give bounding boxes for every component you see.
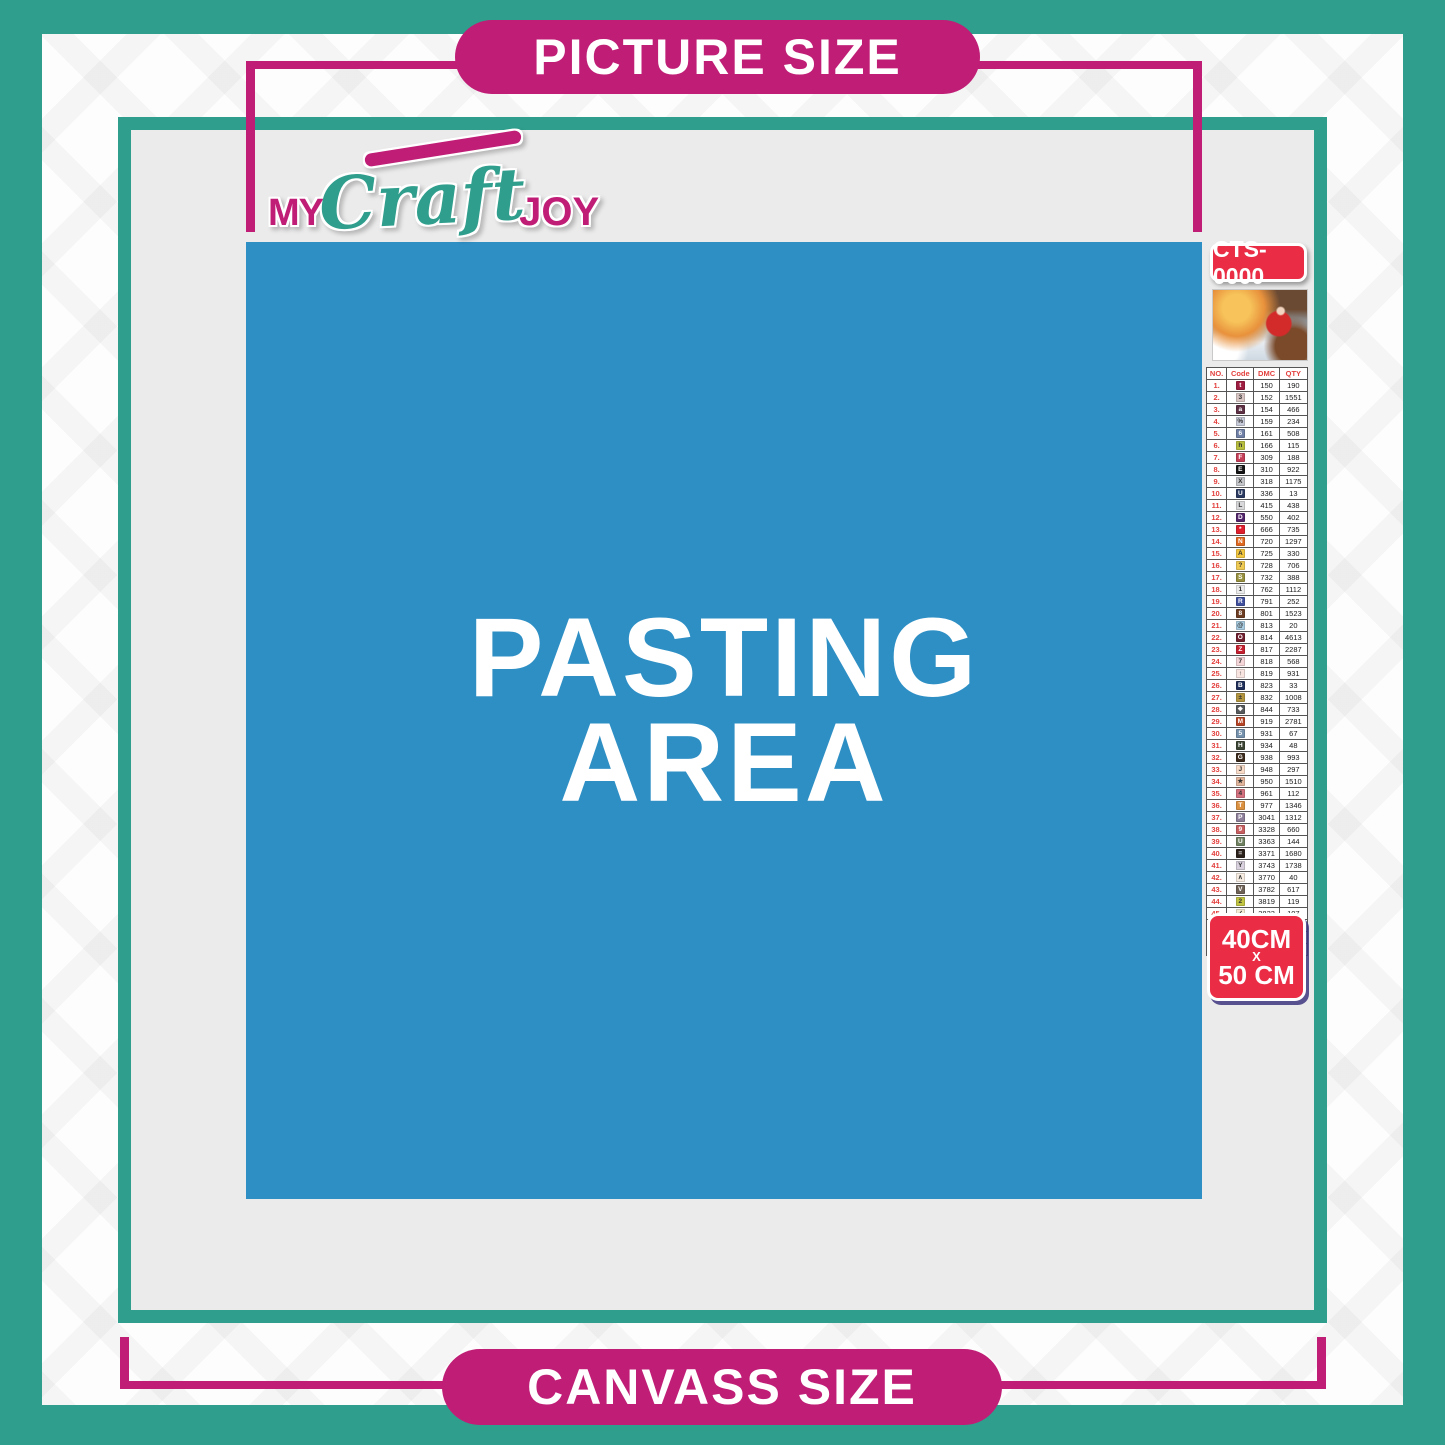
symbol-cell: a — [1227, 404, 1254, 416]
symbol-cell: t — [1227, 380, 1254, 392]
dmc-code-cell: 161 — [1254, 428, 1279, 440]
legend-table-row: 4.%159234 — [1207, 416, 1308, 428]
legend-column-header: NO. — [1207, 368, 1227, 380]
legend-table-row: 42.∧377040 — [1207, 872, 1308, 884]
symbol-cell: F — [1227, 452, 1254, 464]
symbol-cell: G — [1227, 752, 1254, 764]
symbol-cell: 2 — [1227, 896, 1254, 908]
symbol-cell: J — [1227, 764, 1254, 776]
symbol-chip: V — [1236, 885, 1245, 894]
legend-table-row: 18.17621112 — [1207, 584, 1308, 596]
row-number-cell: 20. — [1207, 608, 1227, 620]
pasting-area-label: PASTING AREA — [469, 606, 980, 814]
dmc-code-cell: 3770 — [1254, 872, 1279, 884]
quantity-cell: 1680 — [1279, 848, 1307, 860]
symbol-chip: U — [1236, 489, 1245, 498]
symbol-chip: ↑ — [1236, 669, 1245, 678]
symbol-chip: 9 — [1236, 825, 1245, 834]
symbol-cell: ? — [1227, 560, 1254, 572]
quantity-cell: 508 — [1279, 428, 1307, 440]
row-number-cell: 14. — [1207, 536, 1227, 548]
dmc-code-cell: 919 — [1254, 716, 1279, 728]
quantity-cell: 568 — [1279, 656, 1307, 668]
quantity-cell: 2287 — [1279, 644, 1307, 656]
row-number-cell: 11. — [1207, 500, 1227, 512]
dmc-code-cell: 666 — [1254, 524, 1279, 536]
symbol-chip: Y — [1236, 861, 1245, 870]
symbol-cell: M — [1227, 716, 1254, 728]
row-number-cell: 31. — [1207, 740, 1227, 752]
legend-table-row: 23.Z8172287 — [1207, 644, 1308, 656]
symbol-chip: 1 — [1236, 585, 1245, 594]
legend-column-header: Code — [1227, 368, 1254, 380]
symbol-chip: B — [1236, 681, 1245, 690]
legend-table-row: 11.L415438 — [1207, 500, 1308, 512]
row-number-cell: 27. — [1207, 692, 1227, 704]
canvass-size-banner: CANVASS SIZE — [442, 1349, 1002, 1425]
row-number-cell: 1. — [1207, 380, 1227, 392]
symbol-cell: H — [1227, 740, 1254, 752]
symbol-cell: D — [1227, 512, 1254, 524]
legend-table-row: 33.J948297 — [1207, 764, 1308, 776]
symbol-cell: 3 — [1227, 392, 1254, 404]
symbol-cell: 5 — [1227, 728, 1254, 740]
row-number-cell: 37. — [1207, 812, 1227, 824]
symbol-chip: ∧ — [1236, 873, 1245, 882]
legend-table-row: 35.4961112 — [1207, 788, 1308, 800]
row-number-cell: 6. — [1207, 440, 1227, 452]
legend-table-row: 24.7818568 — [1207, 656, 1308, 668]
legend-table-row: 3.a154466 — [1207, 404, 1308, 416]
symbol-chip: X — [1236, 477, 1245, 486]
symbol-chip: E — [1236, 465, 1245, 474]
dmc-code-cell: 791 — [1254, 596, 1279, 608]
quantity-cell: 144 — [1279, 836, 1307, 848]
dmc-code-cell: 3819 — [1254, 896, 1279, 908]
legend-table-row: 6.h166115 — [1207, 440, 1308, 452]
quantity-cell: 40 — [1279, 872, 1307, 884]
symbol-cell: Y — [1227, 860, 1254, 872]
dmc-code-cell: 3371 — [1254, 848, 1279, 860]
symbol-cell: 4 — [1227, 788, 1254, 800]
symbol-cell: 1 — [1227, 584, 1254, 596]
dmc-code-cell: 415 — [1254, 500, 1279, 512]
symbol-cell: B — [1227, 680, 1254, 692]
quantity-cell: 1510 — [1279, 776, 1307, 788]
row-number-cell: 19. — [1207, 596, 1227, 608]
symbol-cell: X — [1227, 476, 1254, 488]
dmc-code-cell: 728 — [1254, 560, 1279, 572]
quantity-cell: 252 — [1279, 596, 1307, 608]
symbol-chip: 7 — [1236, 657, 1245, 666]
quantity-cell: 119 — [1279, 896, 1307, 908]
dmc-code-cell: 309 — [1254, 452, 1279, 464]
symbol-chip: H — [1236, 741, 1245, 750]
symbol-chip: J — [1236, 765, 1245, 774]
symbol-chip: ± — [1236, 693, 1245, 702]
symbol-chip: 4 — [1236, 789, 1245, 798]
row-number-cell: 34. — [1207, 776, 1227, 788]
symbol-chip: = — [1236, 849, 1245, 858]
quantity-cell: 33 — [1279, 680, 1307, 692]
legend-table-row: 8.E310922 — [1207, 464, 1308, 476]
quantity-cell: 617 — [1279, 884, 1307, 896]
logo-text-joy: JOY — [519, 194, 599, 230]
dmc-code-cell: 977 — [1254, 800, 1279, 812]
row-number-cell: 35. — [1207, 788, 1227, 800]
symbol-cell: % — [1227, 416, 1254, 428]
symbol-chip: R — [1236, 597, 1245, 606]
legend-table-row: 15.A725330 — [1207, 548, 1308, 560]
row-number-cell: 12. — [1207, 512, 1227, 524]
dmc-code-cell: 166 — [1254, 440, 1279, 452]
quantity-cell: 234 — [1279, 416, 1307, 428]
symbol-cell: R — [1227, 596, 1254, 608]
legend-table-row: 32.G938993 — [1207, 752, 1308, 764]
quantity-cell: 330 — [1279, 548, 1307, 560]
symbol-cell: h — [1227, 440, 1254, 452]
legend-table-row: 14.N7201297 — [1207, 536, 1308, 548]
dmc-code-cell: 310 — [1254, 464, 1279, 476]
dmc-code-cell: 150 — [1254, 380, 1279, 392]
legend-table-header-row: NO.CodeDMCQTY — [1207, 368, 1308, 380]
legend-table-row: 22.O8144613 — [1207, 632, 1308, 644]
size-badge-height: 50 CM — [1218, 963, 1295, 987]
symbol-cell: 8 — [1227, 608, 1254, 620]
legend-table-row: 29.M9192781 — [1207, 716, 1308, 728]
symbol-cell: ± — [1227, 692, 1254, 704]
dmc-code-cell: 3782 — [1254, 884, 1279, 896]
legend-table-row: 28.❖844733 — [1207, 704, 1308, 716]
pasting-area: PASTING AREA — [246, 242, 1202, 1199]
picture-size-bracket-tick-left — [246, 61, 255, 232]
quantity-cell: 297 — [1279, 764, 1307, 776]
row-number-cell: 32. — [1207, 752, 1227, 764]
row-number-cell: 30. — [1207, 728, 1227, 740]
symbol-cell: ↑ — [1227, 668, 1254, 680]
dmc-code-cell: 961 — [1254, 788, 1279, 800]
legend-table-row: 20.88011523 — [1207, 608, 1308, 620]
quantity-cell: 733 — [1279, 704, 1307, 716]
quantity-cell: 1175 — [1279, 476, 1307, 488]
legend-column-header: DMC — [1254, 368, 1279, 380]
quantity-cell: 112 — [1279, 788, 1307, 800]
quantity-cell: 190 — [1279, 380, 1307, 392]
quantity-cell: 1008 — [1279, 692, 1307, 704]
legend-table-row: 43.V3782617 — [1207, 884, 1308, 896]
symbol-chip: * — [1236, 525, 1245, 534]
quantity-cell: 735 — [1279, 524, 1307, 536]
symbol-chip: G — [1236, 753, 1245, 762]
symbol-cell: = — [1227, 848, 1254, 860]
quantity-cell: 388 — [1279, 572, 1307, 584]
dmc-code-cell: 732 — [1254, 572, 1279, 584]
symbol-chip: A — [1236, 549, 1245, 558]
dmc-code-cell: 154 — [1254, 404, 1279, 416]
legend-table-row: 12.D550402 — [1207, 512, 1308, 524]
dmc-code-cell: 550 — [1254, 512, 1279, 524]
quantity-cell: 2781 — [1279, 716, 1307, 728]
symbol-cell: P — [1227, 812, 1254, 824]
quantity-cell: 993 — [1279, 752, 1307, 764]
dmc-code-cell: 3328 — [1254, 824, 1279, 836]
row-number-cell: 23. — [1207, 644, 1227, 656]
row-number-cell: 38. — [1207, 824, 1227, 836]
quantity-cell: 1312 — [1279, 812, 1307, 824]
symbol-chip: M — [1236, 717, 1245, 726]
dmc-code-cell: 950 — [1254, 776, 1279, 788]
symbol-cell: V — [1227, 884, 1254, 896]
dmc-code-cell: 3743 — [1254, 860, 1279, 872]
symbol-chip: h — [1236, 441, 1245, 450]
legend-table-row: 40.=33711680 — [1207, 848, 1308, 860]
row-number-cell: 4. — [1207, 416, 1227, 428]
dmc-code-cell: 152 — [1254, 392, 1279, 404]
symbol-cell: ❖ — [1227, 704, 1254, 716]
symbol-chip: D — [1236, 513, 1245, 522]
symbol-chip: 5 — [1236, 729, 1245, 738]
symbol-chip: 2 — [1236, 897, 1245, 906]
pasting-area-line1: PASTING — [469, 606, 980, 710]
row-number-cell: 24. — [1207, 656, 1227, 668]
quantity-cell: 1112 — [1279, 584, 1307, 596]
dmc-code-cell: 817 — [1254, 644, 1279, 656]
legend-table-row: 1.t150190 — [1207, 380, 1308, 392]
symbol-chip: L — [1236, 501, 1245, 510]
symbol-chip: 6 — [1236, 429, 1245, 438]
symbol-chip: t — [1236, 381, 1245, 390]
symbol-chip: Z — [1236, 645, 1245, 654]
row-number-cell: 44. — [1207, 896, 1227, 908]
row-number-cell: 10. — [1207, 488, 1227, 500]
brand-logo: MY Craft JOY — [268, 144, 599, 230]
symbol-chip: a — [1236, 405, 1245, 414]
legend-column-header: QTY — [1279, 368, 1307, 380]
legend-table-row: 21.@81320 — [1207, 620, 1308, 632]
quantity-cell: 1738 — [1279, 860, 1307, 872]
legend-table-row: 34.★9501510 — [1207, 776, 1308, 788]
row-number-cell: 15. — [1207, 548, 1227, 560]
dmc-code-cell: 3041 — [1254, 812, 1279, 824]
legend-table-row: 27.±8321008 — [1207, 692, 1308, 704]
color-legend-table: NO.CodeDMCQTY 1.t1501902.315215513.a1544… — [1206, 367, 1308, 956]
row-number-cell: 25. — [1207, 668, 1227, 680]
row-number-cell: 29. — [1207, 716, 1227, 728]
quantity-cell: 438 — [1279, 500, 1307, 512]
legend-table-row: 19.R791252 — [1207, 596, 1308, 608]
symbol-chip: ★ — [1236, 777, 1245, 786]
dmc-code-cell: 336 — [1254, 488, 1279, 500]
quantity-cell: 466 — [1279, 404, 1307, 416]
dmc-code-cell: 159 — [1254, 416, 1279, 428]
dmc-code-cell: 844 — [1254, 704, 1279, 716]
dmc-code-cell: 948 — [1254, 764, 1279, 776]
symbol-cell: ∧ — [1227, 872, 1254, 884]
dmc-code-cell: 934 — [1254, 740, 1279, 752]
row-number-cell: 16. — [1207, 560, 1227, 572]
legend-table-row: 39.U3363144 — [1207, 836, 1308, 848]
pasting-area-line2: AREA — [469, 711, 980, 815]
row-number-cell: 2. — [1207, 392, 1227, 404]
quantity-cell: 1523 — [1279, 608, 1307, 620]
legend-table-row: 2.31521551 — [1207, 392, 1308, 404]
quantity-cell: 13 — [1279, 488, 1307, 500]
quantity-cell: 4613 — [1279, 632, 1307, 644]
dmc-code-cell: 720 — [1254, 536, 1279, 548]
symbol-chip: ? — [1236, 561, 1245, 570]
design-code-badge: CTS-0000 — [1210, 243, 1307, 282]
symbol-chip: @ — [1236, 621, 1245, 630]
symbol-chip: ❖ — [1236, 705, 1245, 714]
legend-table-row: 13.*666735 — [1207, 524, 1308, 536]
quantity-cell: 1297 — [1279, 536, 1307, 548]
row-number-cell: 40. — [1207, 848, 1227, 860]
symbol-cell: * — [1227, 524, 1254, 536]
symbol-cell: S — [1227, 572, 1254, 584]
logo-text-my: MY — [268, 196, 323, 230]
quantity-cell: 706 — [1279, 560, 1307, 572]
symbol-cell: U — [1227, 488, 1254, 500]
quantity-cell: 402 — [1279, 512, 1307, 524]
dmc-code-cell: 823 — [1254, 680, 1279, 692]
legend-table-row: 38.93328660 — [1207, 824, 1308, 836]
row-number-cell: 18. — [1207, 584, 1227, 596]
row-number-cell: 28. — [1207, 704, 1227, 716]
design-preview-thumbnail — [1212, 289, 1308, 361]
legend-table-row: 16.?728706 — [1207, 560, 1308, 572]
legend-table-row: 44.23819119 — [1207, 896, 1308, 908]
picture-size-bracket-tick-right — [1193, 61, 1202, 232]
dmc-code-cell: 801 — [1254, 608, 1279, 620]
symbol-chip: U — [1236, 837, 1245, 846]
quantity-cell: 48 — [1279, 740, 1307, 752]
symbol-cell: @ — [1227, 620, 1254, 632]
quantity-cell: 660 — [1279, 824, 1307, 836]
dmc-code-cell: 818 — [1254, 656, 1279, 668]
row-number-cell: 7. — [1207, 452, 1227, 464]
size-badge-width: 40CM — [1222, 927, 1291, 951]
symbol-cell: ★ — [1227, 776, 1254, 788]
legend-table-row: 37.P30411312 — [1207, 812, 1308, 824]
canvass-size-bracket-tick-right — [1317, 1337, 1326, 1389]
row-number-cell: 36. — [1207, 800, 1227, 812]
row-number-cell: 43. — [1207, 884, 1227, 896]
legend-table-row: 17.S732388 — [1207, 572, 1308, 584]
symbol-chip: % — [1236, 417, 1245, 426]
dmc-code-cell: 725 — [1254, 548, 1279, 560]
legend-table-row: 10.U33613 — [1207, 488, 1308, 500]
dmc-code-cell: 3363 — [1254, 836, 1279, 848]
quantity-cell: 1551 — [1279, 392, 1307, 404]
quantity-cell: 20 — [1279, 620, 1307, 632]
row-number-cell: 33. — [1207, 764, 1227, 776]
symbol-chip: T — [1236, 801, 1245, 810]
symbol-cell: L — [1227, 500, 1254, 512]
row-number-cell: 22. — [1207, 632, 1227, 644]
dmc-code-cell: 814 — [1254, 632, 1279, 644]
quantity-cell: 922 — [1279, 464, 1307, 476]
symbol-chip: N — [1236, 537, 1245, 546]
symbol-cell: T — [1227, 800, 1254, 812]
quantity-cell: 67 — [1279, 728, 1307, 740]
dmc-code-cell: 832 — [1254, 692, 1279, 704]
symbol-cell: 7 — [1227, 656, 1254, 668]
symbol-cell: Z — [1227, 644, 1254, 656]
canvas-size-badge: 40CM X 50 CM — [1207, 913, 1306, 1001]
row-number-cell: 13. — [1207, 524, 1227, 536]
canvass-size-bracket-tick-left — [120, 1337, 129, 1389]
legend-table-row: 41.Y37431738 — [1207, 860, 1308, 872]
row-number-cell: 8. — [1207, 464, 1227, 476]
diamond-painting-size-guide: PASTING AREA PICTURE SIZE CANVASS SIZE M… — [0, 0, 1445, 1445]
quantity-cell: 931 — [1279, 668, 1307, 680]
symbol-cell: 9 — [1227, 824, 1254, 836]
legend-table-row: 36.T9771346 — [1207, 800, 1308, 812]
legend-table-row: 30.593167 — [1207, 728, 1308, 740]
row-number-cell: 26. — [1207, 680, 1227, 692]
symbol-chip: 3 — [1236, 393, 1245, 402]
symbol-chip: S — [1236, 573, 1245, 582]
legend-table-row: 31.H93448 — [1207, 740, 1308, 752]
legend-table-row: 25.↑819931 — [1207, 668, 1308, 680]
dmc-code-cell: 762 — [1254, 584, 1279, 596]
legend-table-row: 9.X3181175 — [1207, 476, 1308, 488]
dmc-code-cell: 819 — [1254, 668, 1279, 680]
legend-table-row: 26.B82333 — [1207, 680, 1308, 692]
symbol-cell: U — [1227, 836, 1254, 848]
symbol-chip: P — [1236, 813, 1245, 822]
dmc-code-cell: 938 — [1254, 752, 1279, 764]
legend-table-row: 5.6161508 — [1207, 428, 1308, 440]
quantity-cell: 1346 — [1279, 800, 1307, 812]
picture-size-banner: PICTURE SIZE — [455, 20, 980, 94]
dmc-code-cell: 318 — [1254, 476, 1279, 488]
legend-table-row: 7.F309188 — [1207, 452, 1308, 464]
symbol-chip: F — [1236, 453, 1245, 462]
quantity-cell: 188 — [1279, 452, 1307, 464]
dmc-code-cell: 931 — [1254, 728, 1279, 740]
row-number-cell: 42. — [1207, 872, 1227, 884]
row-number-cell: 3. — [1207, 404, 1227, 416]
logo-text-craft: Craft — [318, 165, 527, 233]
row-number-cell: 41. — [1207, 860, 1227, 872]
symbol-chip: O — [1236, 633, 1245, 642]
symbol-cell: E — [1227, 464, 1254, 476]
symbol-cell: N — [1227, 536, 1254, 548]
row-number-cell: 17. — [1207, 572, 1227, 584]
dmc-code-cell: 813 — [1254, 620, 1279, 632]
symbol-chip: 8 — [1236, 609, 1245, 618]
symbol-cell: 6 — [1227, 428, 1254, 440]
symbol-cell: A — [1227, 548, 1254, 560]
row-number-cell: 39. — [1207, 836, 1227, 848]
row-number-cell: 5. — [1207, 428, 1227, 440]
quantity-cell: 115 — [1279, 440, 1307, 452]
row-number-cell: 21. — [1207, 620, 1227, 632]
row-number-cell: 9. — [1207, 476, 1227, 488]
symbol-cell: O — [1227, 632, 1254, 644]
